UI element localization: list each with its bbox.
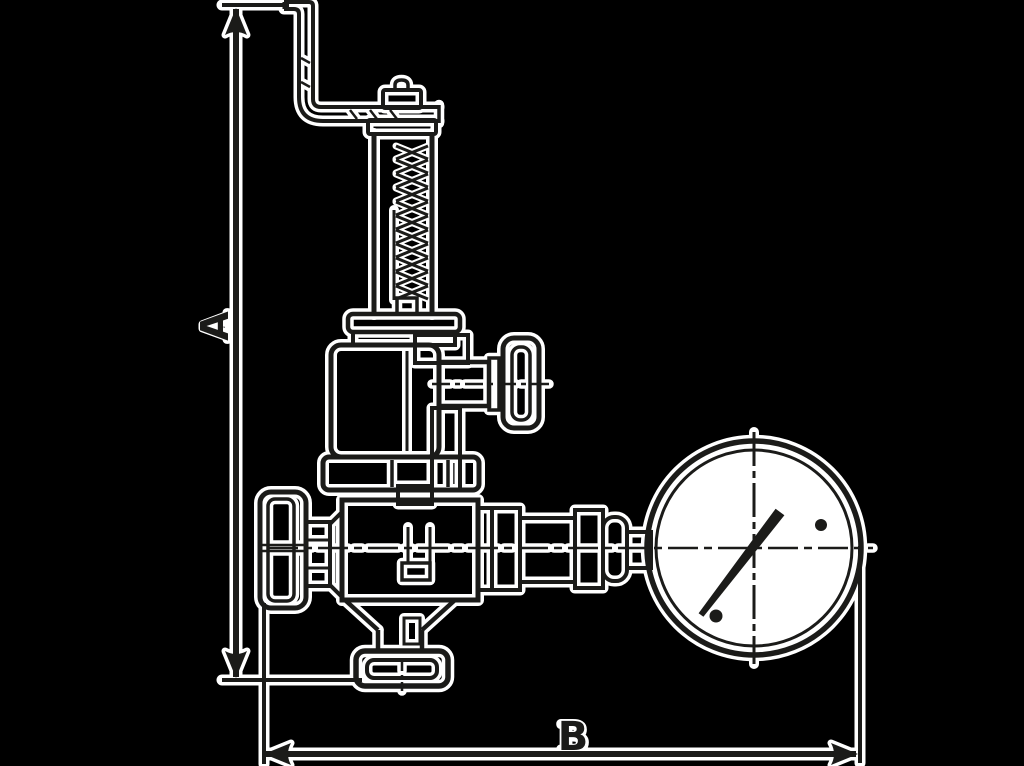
dim-a-label: A	[193, 311, 237, 341]
gauge-screw-right	[815, 519, 827, 531]
upper-body	[323, 335, 553, 490]
dim-b-label: B	[558, 714, 589, 760]
technical-drawing-canvas: A B	[0, 0, 1024, 766]
valve-dimension-drawing: A B	[0, 0, 1024, 766]
gauge-screw-left	[710, 610, 723, 623]
